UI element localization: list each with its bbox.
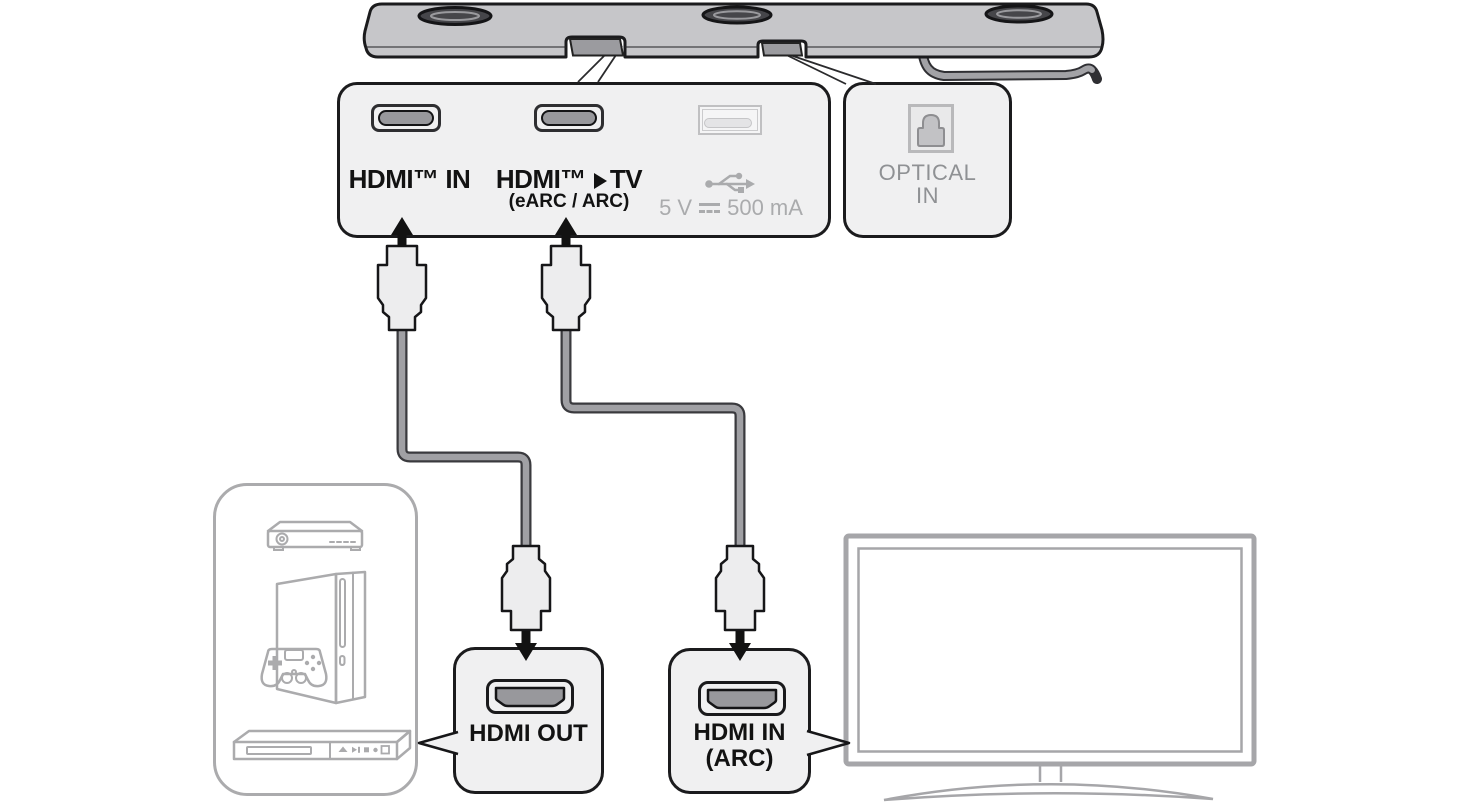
tv-graphic [846, 536, 1254, 800]
soundbar-foot [986, 6, 1052, 22]
hdmi-out-port-icon [486, 679, 574, 714]
usb-rating-current: 500 mA [727, 195, 803, 221]
callout-tail-right [807, 731, 849, 755]
usb-icon [703, 169, 757, 195]
optical-label-line2: IN [846, 184, 1009, 207]
hdmi-in-port-icon [371, 104, 441, 132]
hdmi-tv-sublabel: (eARC / ARC) [493, 191, 645, 213]
hdmi-in-arc-label-line1: HDMI IN [671, 720, 808, 746]
usb-port-tongue [704, 118, 752, 128]
soundbar-foot [703, 7, 771, 23]
power-cable [922, 50, 1097, 79]
hdmi-out-box: HDMI OUT [453, 647, 604, 794]
soundbar-graphic [364, 4, 1103, 57]
dc-symbol-icon [699, 203, 720, 213]
optical-port-icon [908, 104, 954, 153]
callout-lines [578, 43, 876, 84]
usb-port-icon [698, 105, 762, 135]
hdmi-in-arc-port-icon [698, 681, 786, 716]
hdmi-plug-down-left [502, 546, 550, 630]
optical-label: OPTICAL IN [846, 161, 1009, 207]
optical-label-line1: OPTICAL [846, 161, 1009, 184]
soundbar-cutout [570, 39, 623, 56]
hdmi-in-port-inner [378, 110, 434, 126]
hdmi-in-label: HDMI™ IN [342, 164, 477, 195]
play-triangle-icon [594, 173, 607, 189]
hdmi-in-arc-label: HDMI IN (ARC) [671, 720, 808, 772]
hdmi-tv-port-icon [534, 104, 604, 132]
hdmi-in-arc-box: HDMI IN (ARC) [668, 648, 811, 794]
source-devices-box [213, 483, 418, 796]
soundbar-foot [419, 8, 491, 25]
hdmi-out-label: HDMI OUT [456, 721, 601, 747]
optical-panel: OPTICAL IN [843, 82, 1012, 238]
hdmi-in-arc-label-line2: (ARC) [671, 746, 808, 772]
hdmi-tv-port-inner [541, 110, 597, 126]
hdmi-plug-up-left [378, 246, 426, 330]
usb-rating: 5 V 500 mA [631, 195, 831, 221]
hdmi-cable-right [566, 326, 740, 550]
hdmi-plug-down-right [716, 546, 764, 630]
usb-rating-voltage: 5 V [659, 195, 692, 221]
hdmi-cable-left [402, 326, 526, 550]
connection-diagram: HDMI™ IN HDMI™ TV (eARC / ARC) 5 V 500 m… [0, 0, 1465, 805]
soundbar-cutout [762, 43, 802, 56]
hdmi-plug-up-right [542, 246, 590, 330]
soundbar-ports-panel: HDMI™ IN HDMI™ TV (eARC / ARC) 5 V 500 m… [337, 82, 831, 238]
